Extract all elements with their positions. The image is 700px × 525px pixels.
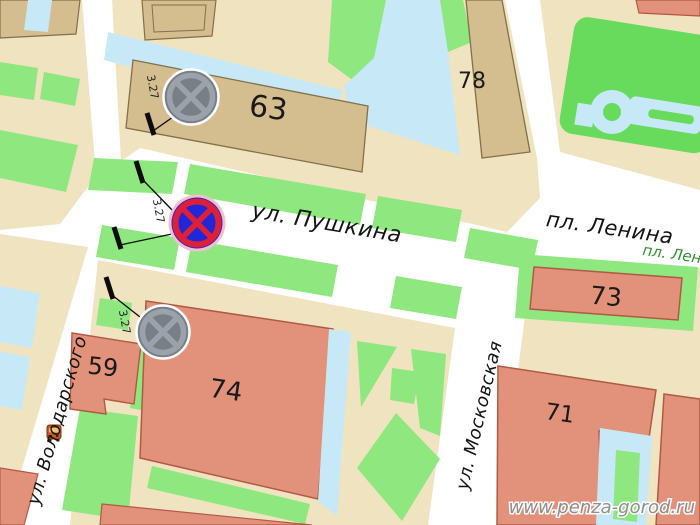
building-63-number: 63 — [247, 89, 290, 129]
building-78-number: 78 — [458, 69, 486, 94]
building-71-number: 71 — [544, 399, 577, 429]
no-stopping-sign-inactive-bottom-icon — [137, 306, 190, 359]
map-canvas[interactable]: 3.27 3.27 3.27 63 78 73 59 74 71 ул. Пуш… — [0, 0, 700, 525]
building-59-number: 59 — [86, 351, 119, 382]
watermark: www.penza-gorod.ru — [509, 497, 695, 518]
building-73-number: 73 — [589, 281, 623, 313]
no-stopping-sign-active-icon — [169, 195, 226, 252]
map-viewport[interactable]: 3.27 3.27 3.27 63 78 73 59 74 71 ул. Пуш… — [0, 0, 700, 525]
no-stopping-sign-inactive-top-icon — [164, 70, 219, 125]
building-74-number: 74 — [207, 374, 244, 408]
